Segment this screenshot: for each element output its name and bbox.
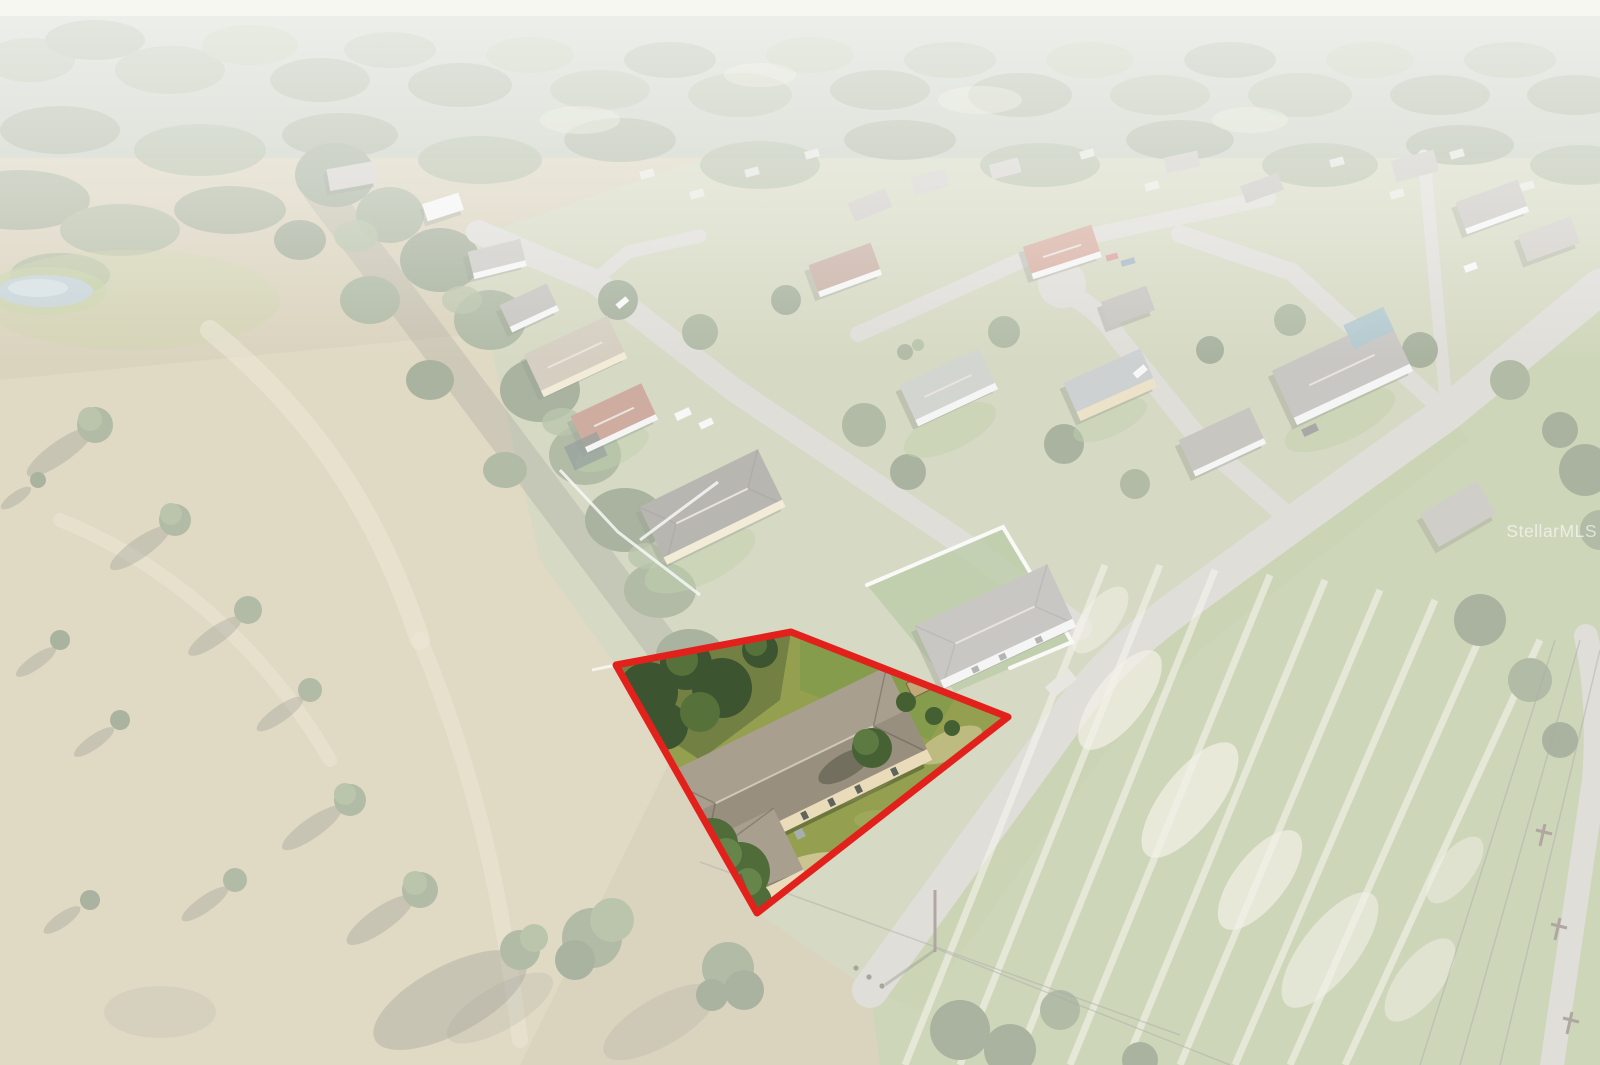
aerial-photo: StellarMLS	[0, 0, 1600, 1065]
sky-haze-gradient	[0, 0, 1600, 1065]
watermark: StellarMLS	[1506, 521, 1597, 541]
sky-band	[0, 0, 1600, 16]
